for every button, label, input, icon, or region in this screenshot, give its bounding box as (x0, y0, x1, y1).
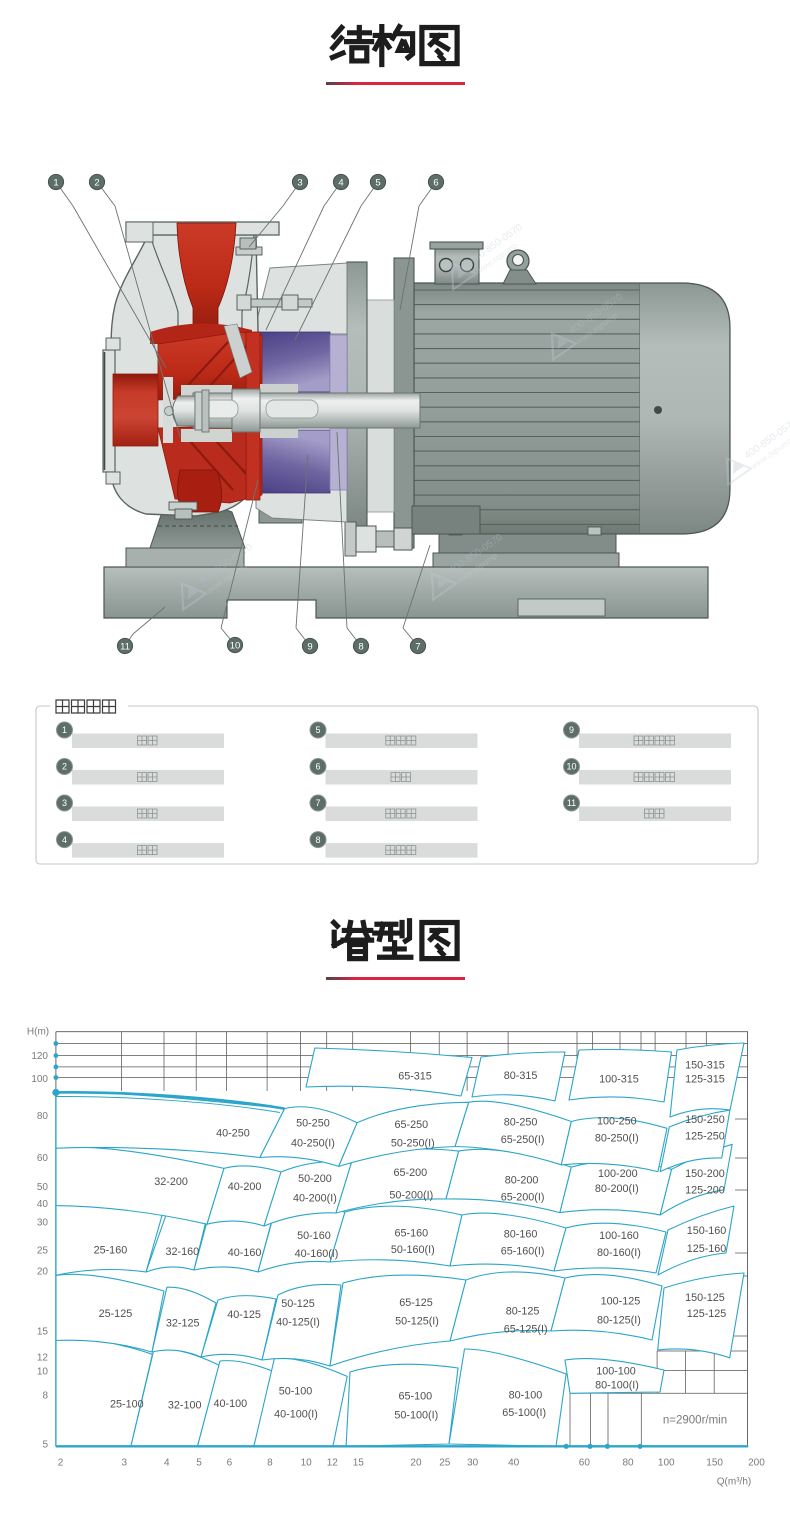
svg-text:6: 6 (227, 1458, 233, 1469)
svg-text:8: 8 (42, 1391, 48, 1402)
svg-text:80-160(I): 80-160(I) (597, 1247, 641, 1259)
svg-text:100-315: 100-315 (599, 1073, 639, 1085)
svg-text:6: 6 (433, 177, 438, 188)
svg-text:50-200(I): 50-200(I) (389, 1190, 433, 1202)
svg-text:100-125: 100-125 (601, 1295, 641, 1307)
svg-text:2: 2 (62, 762, 67, 772)
svg-text:80-250(I): 80-250(I) (595, 1133, 639, 1145)
svg-text:40: 40 (508, 1458, 520, 1469)
svg-text:30: 30 (37, 1217, 49, 1228)
svg-text:100: 100 (658, 1458, 675, 1469)
svg-text:80-315: 80-315 (504, 1070, 538, 1082)
svg-text:3: 3 (122, 1458, 128, 1469)
svg-text:9: 9 (569, 725, 574, 735)
svg-text:15: 15 (37, 1327, 49, 1338)
svg-text:50: 50 (37, 1182, 49, 1193)
svg-text:80: 80 (37, 1111, 49, 1122)
svg-text:40-160(I): 40-160(I) (295, 1248, 339, 1260)
svg-text:1: 1 (53, 177, 58, 188)
svg-text:150-200: 150-200 (685, 1168, 725, 1180)
svg-text:1: 1 (62, 725, 67, 735)
svg-text:40-125(I): 40-125(I) (276, 1316, 320, 1328)
svg-text:100-160: 100-160 (599, 1230, 639, 1242)
svg-text:10: 10 (566, 762, 576, 772)
svg-text:150-250: 150-250 (685, 1114, 725, 1126)
svg-text:4: 4 (164, 1458, 170, 1469)
svg-text:2: 2 (94, 177, 99, 188)
svg-text:40-250(I): 40-250(I) (291, 1138, 335, 1150)
svg-text:7: 7 (315, 798, 320, 808)
svg-text:7: 7 (415, 641, 420, 652)
svg-text:30: 30 (467, 1458, 479, 1469)
svg-text:8: 8 (358, 641, 363, 652)
svg-text:8: 8 (267, 1458, 273, 1469)
svg-text:12: 12 (327, 1458, 339, 1469)
svg-text:32-160: 32-160 (165, 1246, 199, 1258)
svg-text:50-125(I): 50-125(I) (395, 1316, 439, 1328)
svg-text:125-200: 125-200 (685, 1185, 725, 1197)
svg-text:32-100: 32-100 (168, 1400, 202, 1412)
svg-text:50-160(I): 50-160(I) (391, 1244, 435, 1256)
svg-text:50-100(I): 50-100(I) (394, 1409, 438, 1421)
svg-text:5: 5 (196, 1458, 202, 1469)
svg-text:80-100: 80-100 (509, 1390, 543, 1402)
svg-text:40-100(I): 40-100(I) (274, 1408, 318, 1420)
svg-text:65-160(I): 65-160(I) (501, 1245, 545, 1257)
svg-text:150-315: 150-315 (685, 1060, 725, 1072)
svg-text:12: 12 (37, 1353, 49, 1364)
svg-text:50-100: 50-100 (279, 1386, 313, 1398)
svg-text:100-100: 100-100 (596, 1365, 636, 1377)
svg-text:65-200: 65-200 (393, 1167, 427, 1179)
svg-text:n=2900r/min: n=2900r/min (663, 1415, 727, 1427)
svg-text:10: 10 (37, 1367, 49, 1378)
svg-text:8: 8 (315, 835, 320, 845)
svg-text:200: 200 (748, 1458, 765, 1469)
svg-text:11: 11 (567, 798, 576, 808)
svg-text:65-100(I): 65-100(I) (502, 1407, 546, 1419)
svg-text:80-200: 80-200 (505, 1175, 539, 1187)
svg-text:125-160: 125-160 (687, 1243, 727, 1255)
svg-text:65-315: 65-315 (398, 1070, 432, 1082)
svg-text:40: 40 (37, 1199, 49, 1210)
svg-text:80-125(I): 80-125(I) (597, 1315, 641, 1327)
svg-text:40-250: 40-250 (216, 1128, 250, 1140)
svg-text:125-125: 125-125 (687, 1308, 727, 1320)
svg-text:60: 60 (579, 1458, 591, 1469)
svg-text:65-250: 65-250 (394, 1119, 428, 1131)
svg-text:65-250(I): 65-250(I) (501, 1134, 545, 1146)
svg-text:60: 60 (37, 1153, 49, 1164)
svg-text:125-315: 125-315 (685, 1073, 725, 1085)
svg-text:25-160: 25-160 (94, 1244, 128, 1256)
svg-text:H(m): H(m) (27, 1027, 49, 1038)
svg-text:40-200: 40-200 (228, 1181, 262, 1193)
svg-text:40-200(I): 40-200(I) (293, 1192, 337, 1204)
svg-text:80-160: 80-160 (504, 1229, 538, 1241)
svg-text:4: 4 (338, 177, 343, 188)
svg-text:20: 20 (410, 1458, 422, 1469)
svg-text:100: 100 (31, 1074, 48, 1085)
svg-text:80-125: 80-125 (506, 1306, 540, 1318)
svg-text:40-125: 40-125 (227, 1309, 261, 1321)
svg-text:6: 6 (315, 762, 320, 772)
svg-text:100-250: 100-250 (597, 1115, 637, 1127)
svg-text:4: 4 (62, 835, 67, 845)
svg-text:9: 9 (307, 641, 312, 652)
svg-text:3: 3 (297, 177, 302, 188)
svg-text:80-100(I): 80-100(I) (595, 1379, 639, 1391)
svg-text:32-200: 32-200 (154, 1176, 188, 1188)
svg-text:150: 150 (706, 1458, 723, 1469)
svg-text:50-160: 50-160 (297, 1230, 331, 1242)
svg-text:25: 25 (37, 1246, 49, 1257)
svg-text:3: 3 (62, 798, 67, 808)
svg-text:80: 80 (623, 1458, 635, 1469)
svg-text:120: 120 (31, 1051, 48, 1062)
svg-text:11: 11 (120, 641, 130, 652)
svg-text:65-125: 65-125 (399, 1297, 433, 1309)
svg-text:40-100: 40-100 (213, 1398, 247, 1410)
svg-text:150-160: 150-160 (687, 1225, 727, 1237)
svg-text:50-250(I): 50-250(I) (391, 1138, 435, 1150)
svg-text:10: 10 (230, 640, 241, 651)
svg-text:32-125: 32-125 (166, 1317, 200, 1329)
svg-text:25-100: 25-100 (110, 1398, 144, 1410)
svg-text:15: 15 (353, 1458, 365, 1469)
svg-text:65-160: 65-160 (394, 1228, 428, 1240)
svg-text:20: 20 (37, 1267, 49, 1278)
svg-text:40-160: 40-160 (228, 1247, 262, 1259)
svg-text:Q(m³/h): Q(m³/h) (717, 1477, 751, 1488)
svg-text:125-250: 125-250 (685, 1131, 725, 1143)
svg-text:100-200: 100-200 (598, 1168, 638, 1180)
svg-text:25: 25 (439, 1458, 451, 1469)
svg-text:80-200(I): 80-200(I) (595, 1183, 639, 1195)
svg-text:2: 2 (58, 1458, 64, 1469)
svg-text:65-200(I): 65-200(I) (501, 1191, 545, 1203)
svg-text:80-250: 80-250 (504, 1116, 538, 1128)
svg-text:25-125: 25-125 (99, 1308, 133, 1320)
svg-text:150-125: 150-125 (685, 1292, 725, 1304)
svg-text:5: 5 (375, 177, 380, 188)
svg-text:65-125(I): 65-125(I) (504, 1323, 548, 1335)
svg-text:10: 10 (301, 1458, 313, 1469)
svg-text:5: 5 (42, 1440, 48, 1451)
svg-text:50-125: 50-125 (281, 1298, 315, 1310)
svg-text:65-100: 65-100 (398, 1391, 432, 1403)
svg-text:50-200: 50-200 (298, 1173, 332, 1185)
svg-text:5: 5 (315, 725, 320, 735)
svg-text:50-250: 50-250 (296, 1117, 330, 1129)
